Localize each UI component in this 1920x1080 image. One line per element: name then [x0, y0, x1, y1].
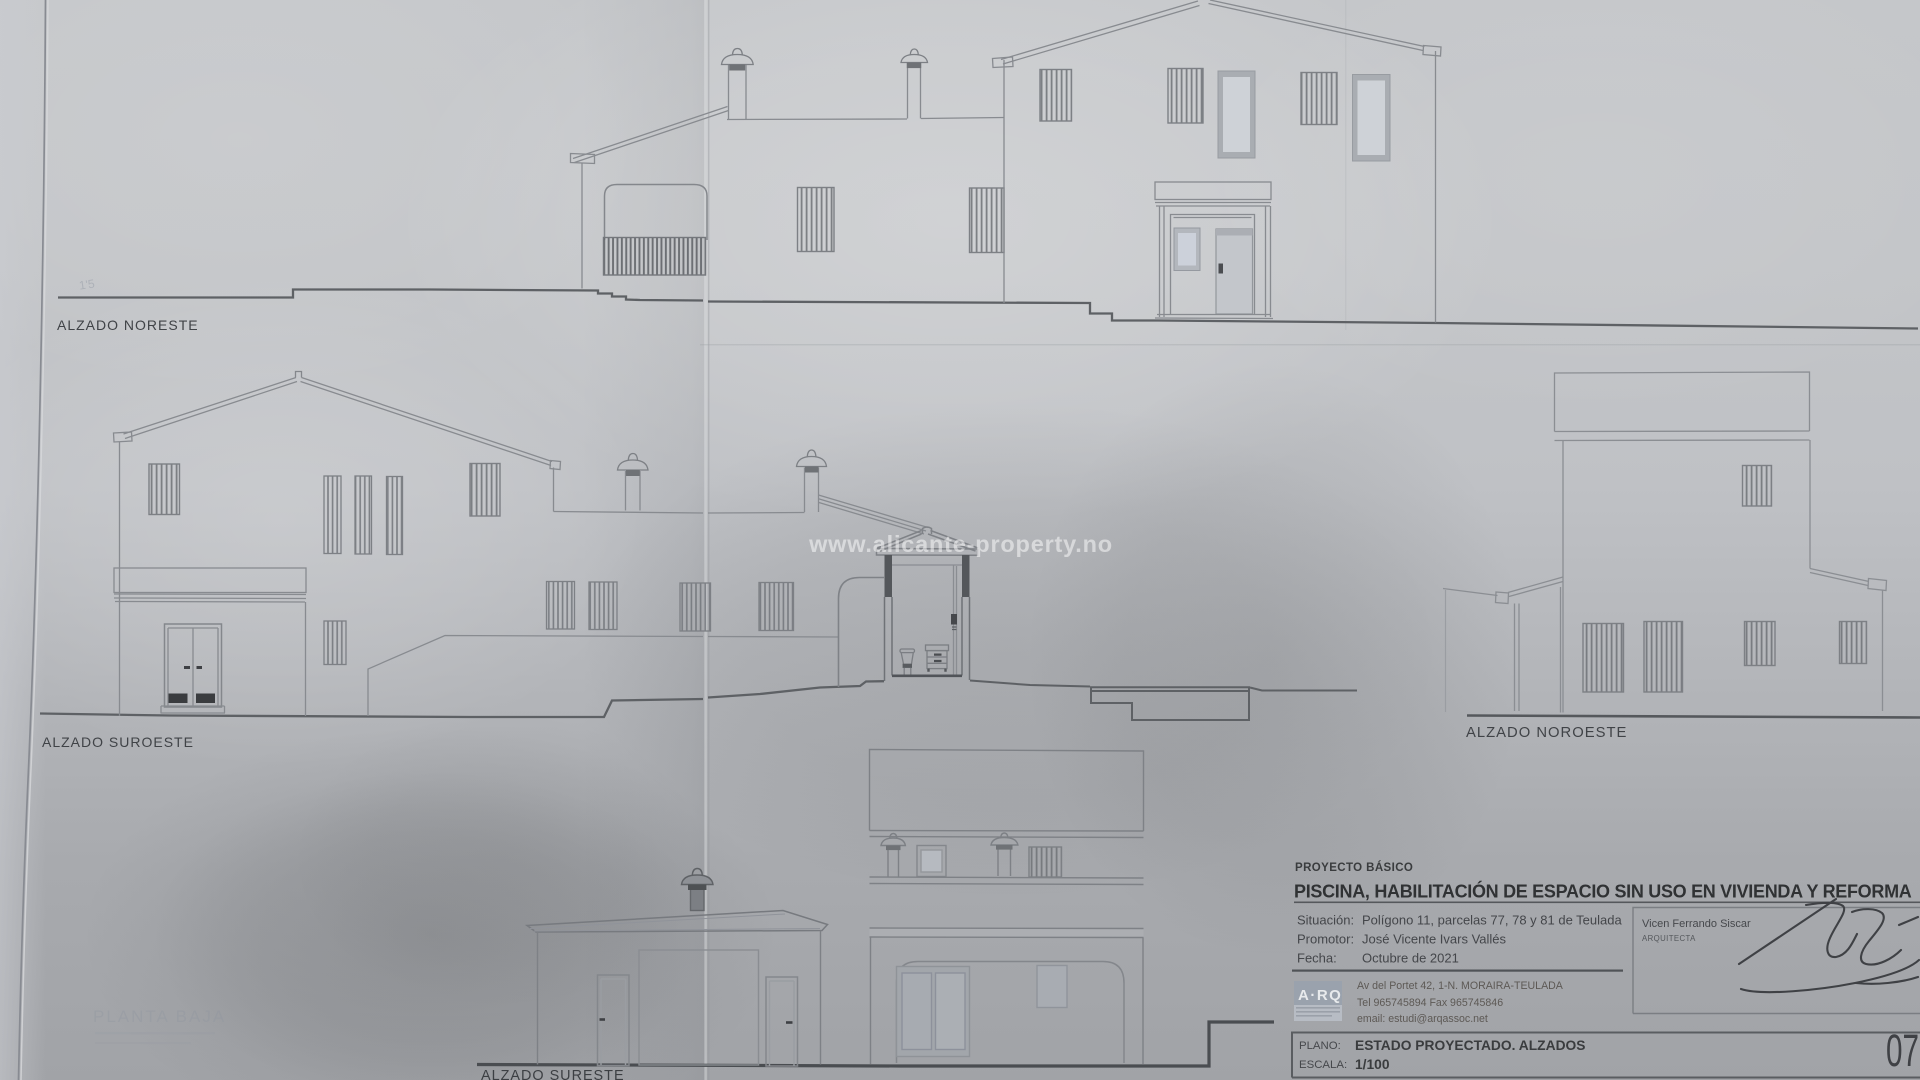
- svg-text:ESCALA:: ESCALA:: [1299, 1059, 1347, 1071]
- svg-text:ALZADO SURESTE: ALZADO SURESTE: [481, 1068, 625, 1080]
- svg-text:A·RQ: A·RQ: [1298, 987, 1342, 1004]
- svg-text:Situación:: Situación:: [1297, 913, 1354, 928]
- svg-text:PROYECTO BÁSICO: PROYECTO BÁSICO: [1295, 861, 1413, 874]
- svg-text:Fecha:: Fecha:: [1297, 951, 1337, 966]
- svg-text:email: estudi@arqassoc.net: email: estudi@arqassoc.net: [1357, 1013, 1488, 1025]
- svg-text:Tel 965745894 Fax 965745846: Tel 965745894 Fax 965745846: [1357, 997, 1503, 1009]
- svg-text:Polígono 11, parcelas 77, 78 y: Polígono 11, parcelas 77, 78 y 81 de Teu…: [1362, 913, 1622, 928]
- svg-text:ALZADO SUROESTE: ALZADO SUROESTE: [42, 734, 194, 750]
- svg-text:PLANO:: PLANO:: [1299, 1040, 1341, 1052]
- svg-text:1'5: 1'5: [78, 277, 96, 293]
- svg-text:Octubre de 2021: Octubre de 2021: [1362, 951, 1459, 966]
- svg-text:www.alicante-property.no: www.alicante-property.no: [808, 531, 1113, 557]
- svg-text:1/100: 1/100: [1355, 1057, 1390, 1072]
- svg-text:ALZADO NORESTE: ALZADO NORESTE: [57, 317, 199, 333]
- svg-text:ALZADO NOROESTE: ALZADO NOROESTE: [1466, 725, 1627, 741]
- svg-text:ARQUITECTA: ARQUITECTA: [1642, 934, 1696, 943]
- svg-text:PISCINA, HABILITACIÓN DE ESPAC: PISCINA, HABILITACIÓN DE ESPACIO SIN USO…: [1294, 881, 1912, 902]
- svg-text:José Vicente Ivars Vallés: José Vicente Ivars Vallés: [1362, 932, 1507, 947]
- svg-text:PLANTA BAJA: PLANTA BAJA: [93, 1007, 226, 1026]
- svg-text:Vicen Ferrando Siscar: Vicen Ferrando Siscar: [1642, 918, 1751, 930]
- svg-text:07: 07: [1886, 1025, 1919, 1076]
- svg-text:Av del Portet 42, 1-N. MOR: Av del Portet 42, 1-N. MORAIRA-TEULADA: [1357, 980, 1564, 992]
- svg-text:Promotor:: Promotor:: [1297, 932, 1354, 947]
- svg-text:ESTADO PROYECTADO. ALZADOS: ESTADO PROYECTADO. ALZADOS: [1355, 1038, 1585, 1053]
